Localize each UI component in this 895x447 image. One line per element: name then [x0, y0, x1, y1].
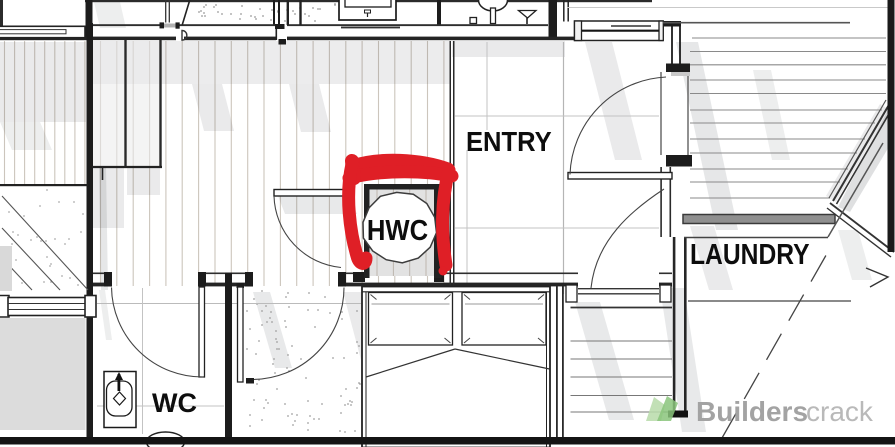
svg-text:HWC: HWC: [367, 214, 428, 247]
svg-text:crack: crack: [806, 396, 874, 427]
svg-text:Builders: Builders: [696, 396, 808, 427]
svg-text:WC: WC: [152, 388, 197, 418]
svg-text:ENTRY: ENTRY: [466, 126, 552, 157]
svg-text:LAUNDRY: LAUNDRY: [690, 238, 810, 270]
